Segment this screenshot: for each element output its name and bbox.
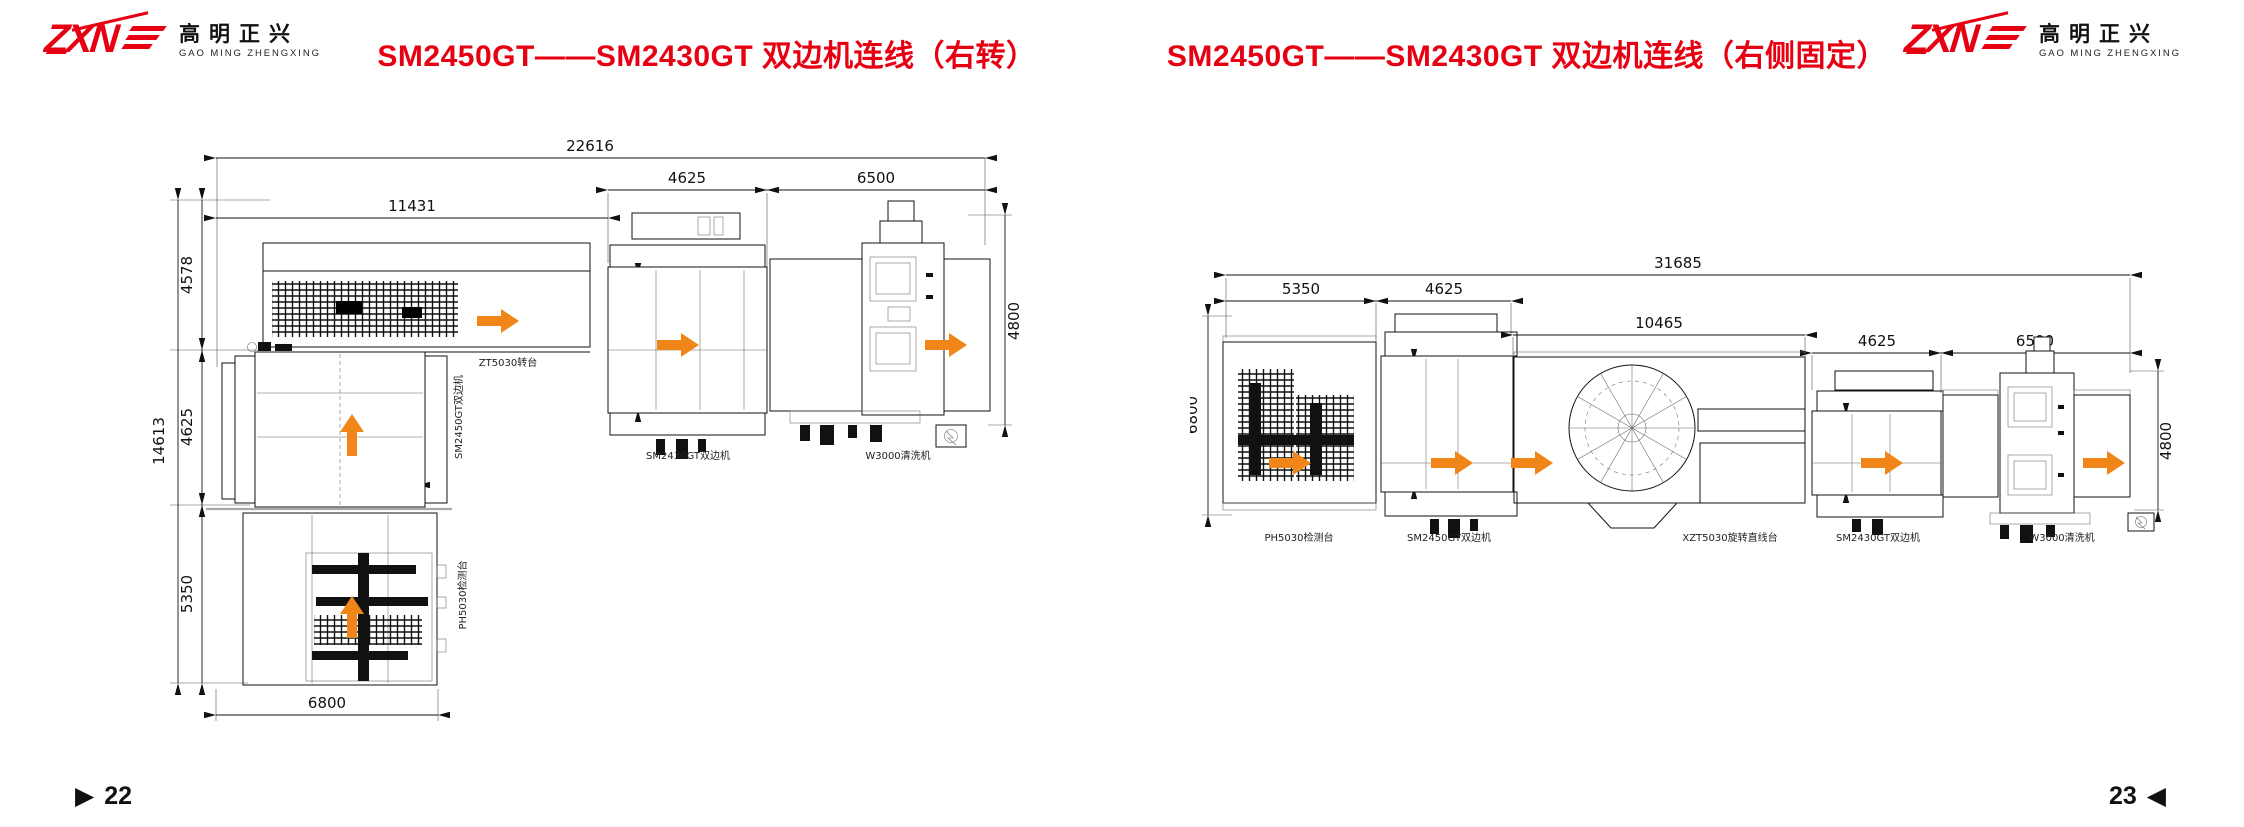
dim-washer-height: 4800 (1005, 302, 1023, 340)
cart-icon (936, 425, 966, 447)
page-number-value: 22 (104, 782, 132, 811)
dim-edger2-width: 4625 (668, 169, 706, 187)
rotary-label: XZT5030旋转直线台 (1682, 531, 1777, 544)
edger2-machine: SM2430GT双边机 (1812, 371, 1943, 544)
dim-edger1-depth: 4625 (178, 408, 196, 446)
catalog-spread: ZXN 高明正兴 GAO MING ZHENGXING SM2450GT——SM… (0, 0, 2244, 827)
washer-label: W3000清洗机 (865, 449, 930, 462)
flow-arrow-right (2083, 451, 2125, 475)
brand-mark-icon: ZXN (1905, 16, 2027, 66)
dim-inspect-width: 5350 (1282, 280, 1320, 298)
edger2-label: SM2430GT双边机 (1836, 531, 1920, 544)
dim-total-depth: 14613 (150, 417, 168, 465)
cart-icon (2128, 513, 2154, 531)
left-page-title: SM2450GT——SM2430GT 双边机连线（右转） (345, 31, 1069, 75)
inspect-label: PH5030检测台 (456, 561, 469, 630)
brand-wordmark: 高明正兴 GAO MING ZHENGXING (179, 23, 321, 59)
dim-edger2-width: 4625 (1858, 332, 1896, 350)
dim-washer-height: 4800 (2157, 422, 2175, 460)
dim-washer-width: 6500 (857, 169, 895, 187)
dim-total-width: 22616 (566, 137, 614, 155)
dim-infeed-width: 11431 (388, 197, 436, 215)
rotary-ring (1569, 365, 1695, 491)
brand-name-cn: 高明正兴 (2039, 23, 2181, 47)
edger1-label: SM2450GT双边机 (452, 375, 465, 459)
washer-machine: W3000清洗机 (1943, 337, 2154, 544)
page-number-right: 23 ◀ (2109, 781, 2166, 811)
edger1-machine: SM2450GT双边机 (1381, 314, 1517, 544)
edger2-machine: SM2430GT双边机 (608, 213, 767, 462)
edger1-label: SM2450GT双边机 (1407, 531, 1491, 544)
page-number-left: ▶ 22 (75, 781, 132, 811)
inspect-table: PH5030检测台 (243, 513, 469, 685)
brand-wordmark: 高明正兴 GAO MING ZHENGXING (2039, 23, 2181, 59)
inspect-label: PH5030检测台 (1265, 531, 1334, 544)
inspect-table: PH5030检测台 (1223, 336, 1376, 544)
brand-name-en: GAO MING ZHENGXING (179, 48, 321, 59)
dim-total-width: 31685 (1654, 254, 1702, 272)
brand-logo-right: ZXN 高明正兴 GAO MING ZHENGXING (1905, 13, 2181, 69)
washer-label: W3000清洗机 (2029, 531, 2094, 544)
page-number-value: 23 (2109, 782, 2137, 811)
dim-edger1-width: 4625 (1425, 280, 1463, 298)
washer-machine: W3000清洗机 (770, 201, 990, 462)
left-layout-diagram: 22616 4625 6500 11431 14613 4578 4625 53… (100, 95, 1080, 755)
turntable-conveyor: ZT5030转台 (263, 243, 590, 369)
page-marker-icon: ▶ (75, 781, 94, 811)
flow-arrow-right (1511, 451, 1553, 475)
right-layout-diagram: 31685 5350 4625 10465 4625 6500 6800 500… (1190, 245, 2200, 575)
turntable-label: ZT5030转台 (479, 356, 537, 369)
dim-turntable-depth: 4578 (178, 256, 196, 294)
page-marker-icon: ◀ (2147, 781, 2166, 811)
right-page-title: SM2450GT——SM2430GT 双边机连线（右侧固定） (1165, 31, 1889, 75)
edger1-machine: SM2450GT双边机 (206, 342, 465, 509)
flow-arrow-right (477, 309, 519, 333)
dim-rotary-width: 10465 (1635, 314, 1683, 332)
dim-inspect-depth: 5350 (178, 575, 196, 613)
brand-name-cn: 高明正兴 (179, 23, 321, 47)
brand-logo-left: ZXN 高明正兴 GAO MING ZHENGXING (45, 13, 321, 69)
brand-mark-icon: ZXN (45, 16, 167, 66)
brand-name-en: GAO MING ZHENGXING (2039, 48, 2181, 59)
rotary-table: XZT5030旋转直线台 (1511, 352, 1805, 544)
edger2-label: SM2430GT双边机 (646, 449, 730, 462)
dim-inspect-depth: 6800 (1190, 396, 1201, 434)
dim-inspect-width: 6800 (308, 694, 346, 712)
